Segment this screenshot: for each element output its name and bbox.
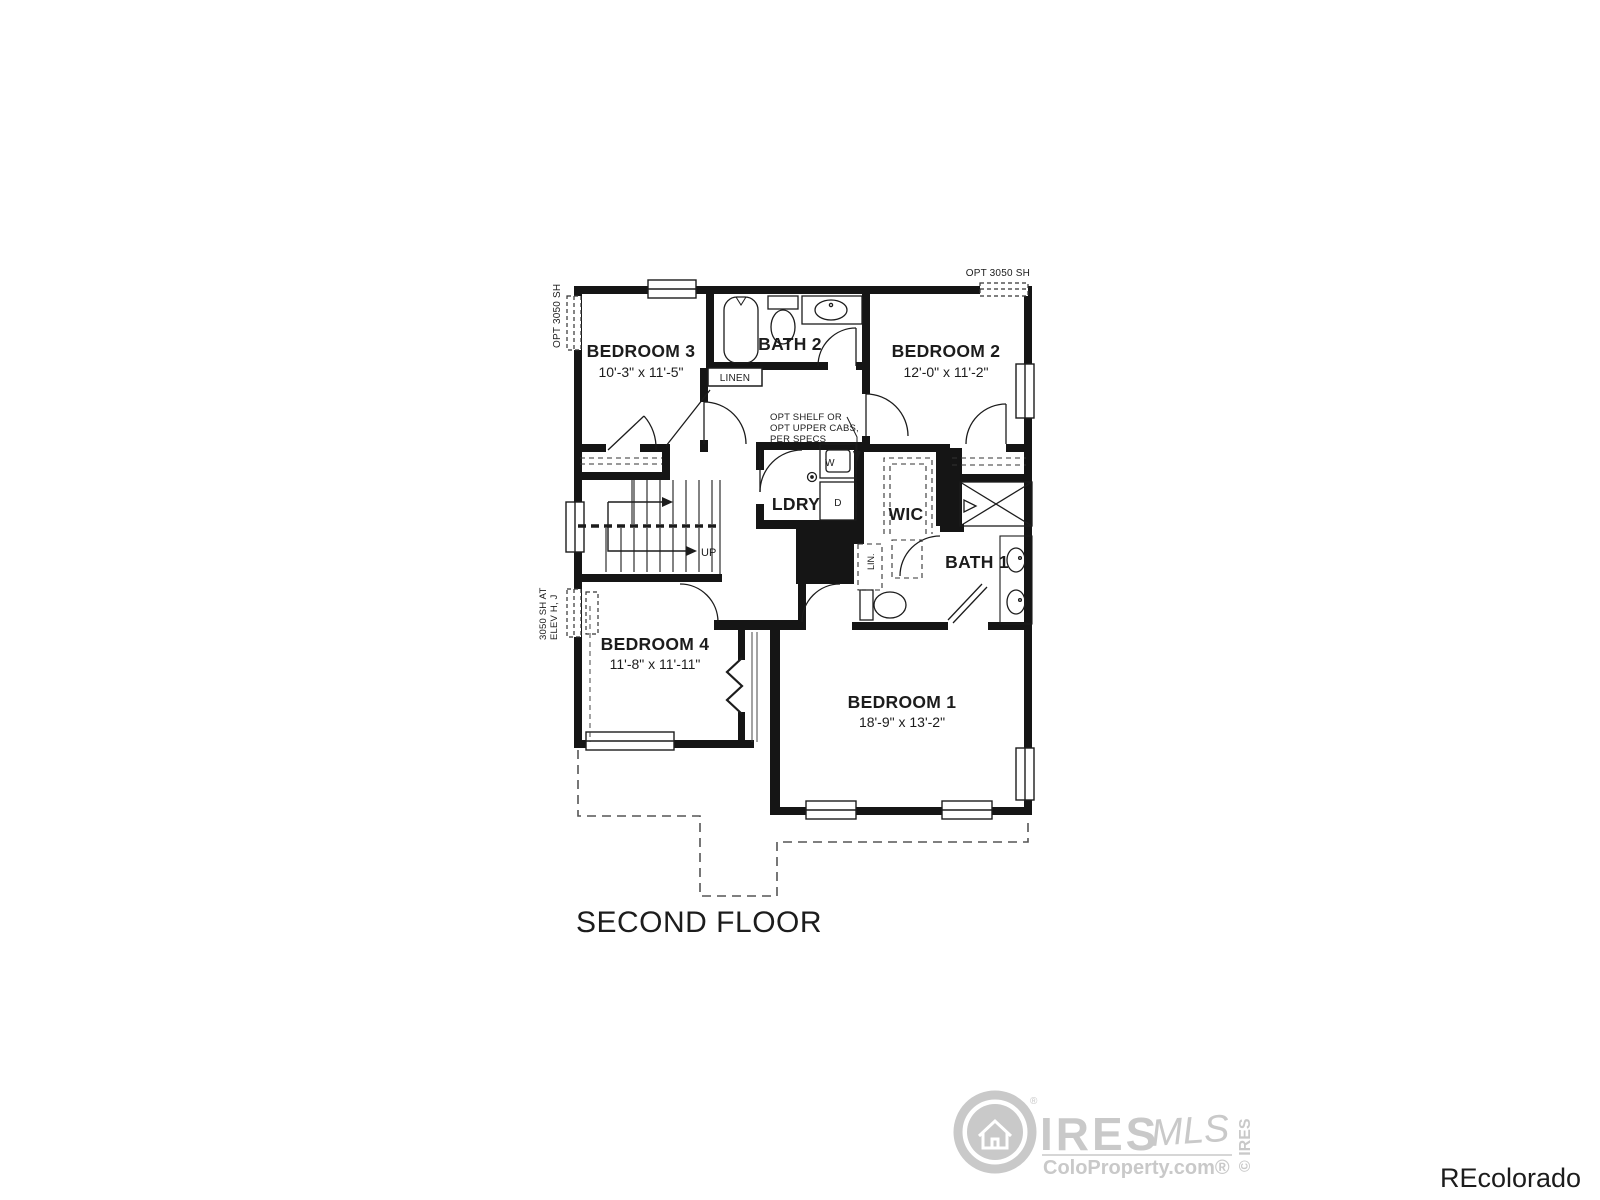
floor-plan-page: BEDROOM 3 10'-3" x 11'-5" BATH 2 BEDROOM… bbox=[0, 0, 1600, 1200]
door-arc bbox=[680, 584, 718, 622]
elev-window-label-1: 3050 SH AT bbox=[538, 587, 549, 640]
opt-window-label-top: OPT 3050 SH bbox=[966, 268, 1030, 279]
door-arc bbox=[704, 402, 746, 444]
room-label-wic: WIC bbox=[889, 504, 924, 524]
copyright-ires-vertical: © IRES bbox=[1237, 1118, 1254, 1172]
room-label-bedroom3: BEDROOM 3 bbox=[587, 341, 696, 361]
room-dims-bedroom2: 12'-0" x 11'-2" bbox=[903, 364, 988, 380]
room-label-bedroom1: BEDROOM 1 bbox=[848, 692, 957, 712]
lin-closet-label: LIN. bbox=[866, 553, 876, 570]
room-label-ldry: LDRY bbox=[772, 494, 820, 514]
window bbox=[1016, 364, 1034, 418]
optional-window bbox=[567, 296, 581, 350]
ires-logo-disc bbox=[967, 1104, 1023, 1160]
elev-window-label-2: ELEV H, J bbox=[549, 594, 560, 640]
window bbox=[1016, 748, 1034, 800]
coloproperty-text: ColoProperty.com® bbox=[1043, 1157, 1230, 1179]
door-arc bbox=[966, 404, 1006, 444]
optional-window bbox=[980, 283, 1028, 296]
optional-window bbox=[567, 589, 581, 637]
mls-script-text: MLS bbox=[1150, 1108, 1231, 1155]
room-dims-bedroom3: 10'-3" x 11'-5" bbox=[598, 364, 683, 380]
door-leaf bbox=[948, 584, 987, 623]
window bbox=[586, 732, 674, 750]
room-label-linen: LINEN bbox=[720, 373, 750, 384]
door-arc bbox=[900, 536, 940, 576]
window bbox=[806, 801, 856, 819]
room-label-bath2: BATH 2 bbox=[758, 334, 822, 354]
room-label-bath1: BATH 1 bbox=[945, 552, 1009, 572]
room-label-bedroom2: BEDROOM 2 bbox=[892, 341, 1001, 361]
ires-registered-mark: ® bbox=[1030, 1096, 1038, 1107]
door-arc bbox=[802, 584, 840, 622]
room-dims-bedroom4: 11'-8" x 11'-11" bbox=[610, 656, 701, 672]
annotation-opt-shelf-3: PER SPECS bbox=[770, 434, 826, 445]
floor-plan-svg: BEDROOM 3 10'-3" x 11'-5" BATH 2 BEDROOM… bbox=[0, 0, 1600, 1200]
floor-below-outline bbox=[578, 750, 1028, 896]
window bbox=[648, 280, 696, 298]
optional-window-outline bbox=[586, 592, 598, 634]
room-label-bedroom4: BEDROOM 4 bbox=[601, 634, 710, 654]
ceiling-fixture-icon bbox=[808, 473, 817, 482]
dryer-label: D bbox=[834, 498, 841, 509]
room-dims-bedroom1: 18'-9" x 13'-2" bbox=[859, 714, 945, 730]
annotation-opt-shelf-2: OPT UPPER CABS, bbox=[770, 423, 859, 434]
shower-icon bbox=[960, 482, 1032, 526]
door-arc bbox=[866, 394, 908, 436]
sink-icon bbox=[802, 296, 862, 324]
bathtub-icon bbox=[724, 297, 758, 363]
recolorado-watermark: REcolorado bbox=[1440, 1163, 1581, 1193]
toilet-icon bbox=[860, 590, 906, 620]
floor-title: SECOND FLOOR bbox=[576, 906, 822, 939]
washer-label: W bbox=[825, 458, 835, 469]
annotation-opt-shelf-1: OPT SHELF OR bbox=[770, 412, 842, 423]
ires-watermark: ® IRES MLS ColoProperty.com® © IRES bbox=[958, 1095, 1254, 1179]
opt-window-label-left: OPT 3050 SH bbox=[552, 284, 563, 348]
stairs bbox=[578, 480, 720, 574]
door-arc bbox=[818, 328, 856, 366]
wic-shelf bbox=[892, 540, 922, 578]
ires-brand-text: IRES bbox=[1040, 1108, 1159, 1160]
bifold-door-icon bbox=[727, 658, 742, 714]
stairs-up-label: UP bbox=[701, 547, 716, 559]
window bbox=[942, 801, 992, 819]
door-arc bbox=[760, 450, 802, 492]
